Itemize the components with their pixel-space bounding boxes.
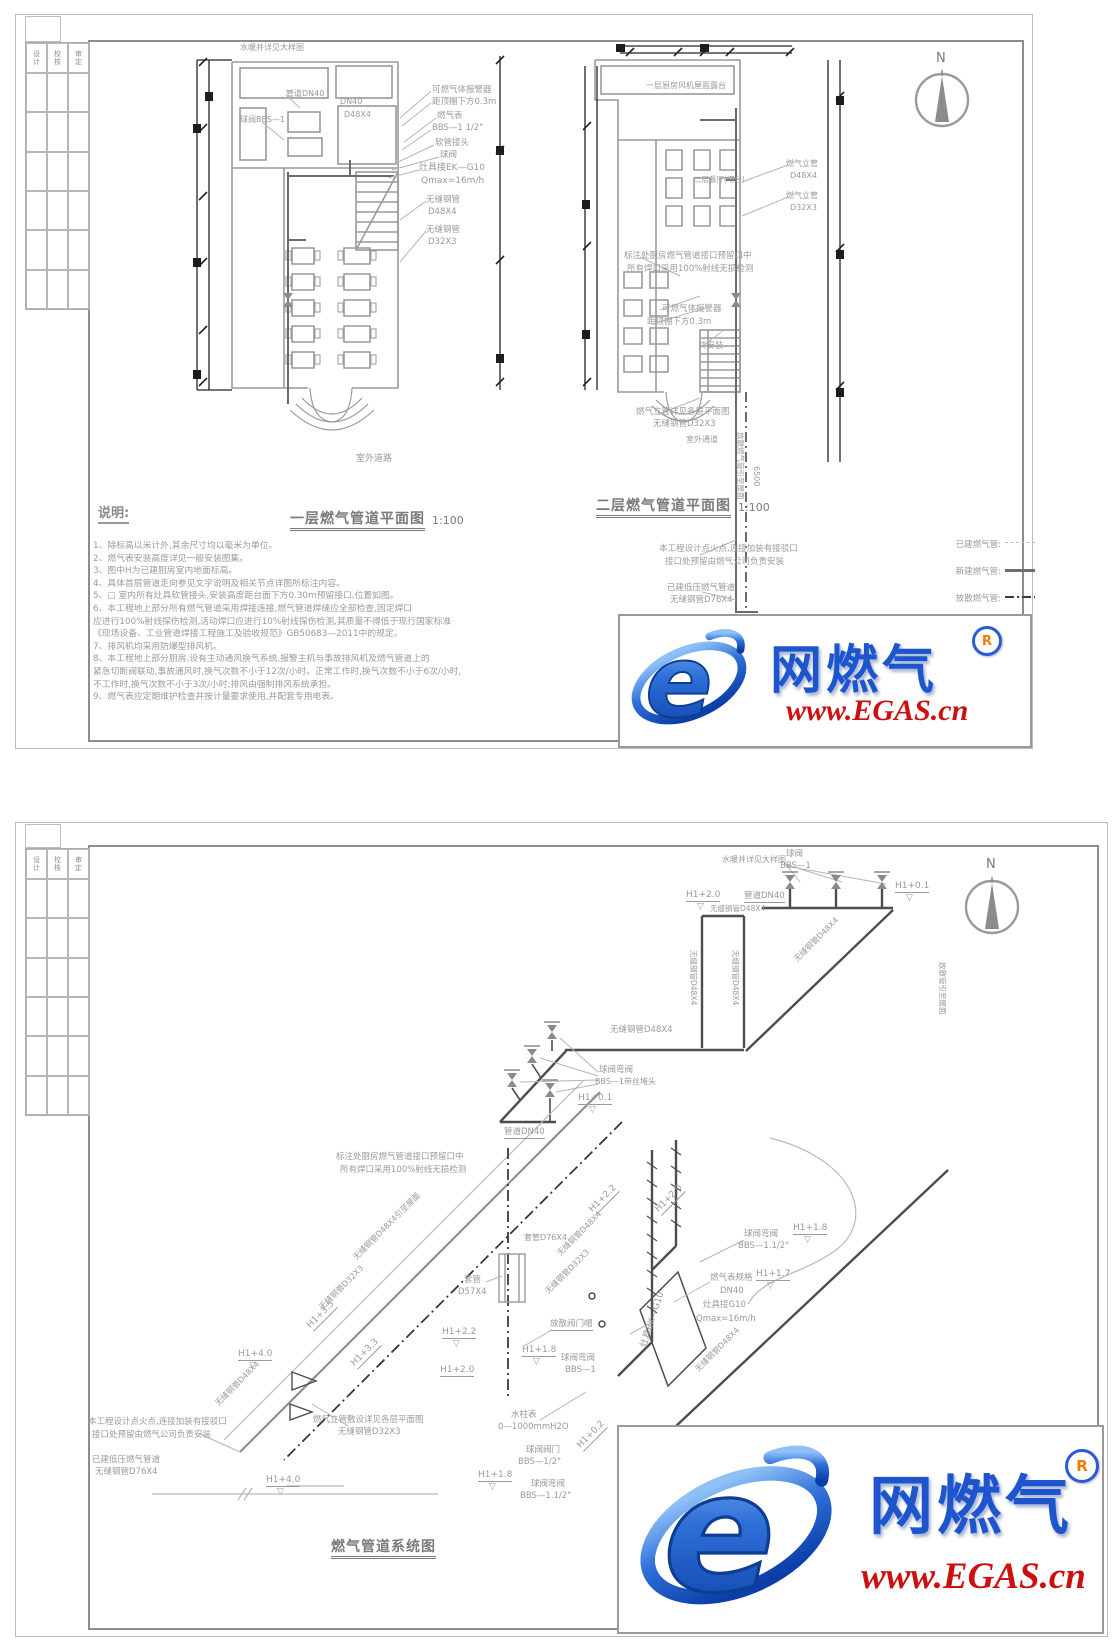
drawing-label: H1+4.0 — [266, 1476, 300, 1487]
annotation-layer: 水暖井详见大样图管道DN40DN40D48X4球阀BBS—1可燃气体报警器距顶棚… — [0, 0, 1118, 1651]
drawing-label: H1+1.7 — [756, 1270, 790, 1281]
drawing-label: DN40 — [340, 98, 362, 106]
drawing-page: 设计校核审定 设计校核审定 — [0, 0, 1118, 1651]
drawing-label: H1+2.2 — [588, 1184, 620, 1216]
system-diagram-title: 燃气管道系统图 — [331, 1540, 436, 1559]
drawing-label: ▽ — [589, 1106, 596, 1115]
north-label: N — [986, 858, 996, 871]
drawing-label: 球阀 — [440, 151, 457, 160]
drawing-label: ▽ — [697, 903, 704, 912]
drawing-label: BBS—1.1/2" — [520, 1492, 571, 1501]
drawing-label: 无缝钢管D48X4 — [710, 905, 765, 913]
svg-text:e: e — [663, 1437, 775, 1629]
drawing-label: BBS—1 1/2" — [432, 124, 483, 133]
drawing-label: ▽ — [767, 1282, 774, 1291]
drawing-label: 室外通道 — [686, 436, 718, 444]
drawing-label: 燃气立管 — [786, 192, 818, 200]
drawing-label: H1+2.2 — [442, 1328, 476, 1339]
watermark-brand: 网燃气 — [869, 1455, 1073, 1547]
drawing-label: 接口处预留由燃气公司负责安装 — [92, 1431, 211, 1440]
drawing-label: 燃气立管敷设详见各层平面图 — [313, 1416, 424, 1425]
svg-text:e: e — [645, 625, 712, 740]
drawing-label: 软管接头 — [435, 139, 469, 148]
drawing-label: 本工程设计点火点,连接加装有接驳口 — [659, 545, 798, 554]
drawing-label: 无缝钢管D76X4 — [670, 596, 733, 605]
drawing-label: 无缝钢管D48X4 — [610, 1026, 673, 1035]
watermark-url: www.EGAS.cn — [786, 694, 968, 728]
drawing-label: 无缝钢管D48X4 — [214, 1360, 261, 1407]
drawing-label: BBS—1 — [565, 1366, 596, 1375]
drawing-label: 放散管引至屋面 — [939, 962, 947, 1015]
drawing-label: 接口处预留由燃气公司负责安装 — [665, 558, 784, 567]
drawing-label: H1+1.8 — [793, 1224, 827, 1235]
drawing-label: Qmax=16m/h — [696, 1315, 756, 1324]
drawing-label: 无缝钢管D32X3 — [544, 1248, 591, 1295]
drawing-label: 套管 — [464, 1276, 481, 1285]
drawing-label: 水暖井详见大样图 — [240, 44, 304, 52]
drawing-label: ▽ — [804, 1236, 811, 1245]
drawing-label: BBS—1 — [780, 862, 811, 871]
drawing-label: ▽ — [277, 1488, 284, 1497]
drawing-label: 放散燃气管引至屋面 — [737, 432, 745, 500]
watermark-brand: 网燃气 — [770, 628, 938, 703]
drawing-label: 放散阀门帽 — [550, 1320, 593, 1331]
drawing-label: BBS—1.1/2" — [738, 1242, 789, 1251]
drawing-label: 水柱表 — [511, 1411, 537, 1420]
drawing-label: 无缝钢管D48X4 — [793, 916, 840, 963]
drawing-label: 无缝钢管D32X3 — [653, 420, 716, 429]
drawing-label: 燃气立管 — [786, 160, 818, 168]
drawing-label: 球阀弯阀 — [561, 1354, 595, 1363]
drawing-label: D32X3 — [790, 204, 817, 212]
drawing-label: ▽ — [906, 894, 913, 903]
drawing-label: H1+1.8 — [522, 1346, 556, 1357]
north-label: N — [936, 52, 946, 65]
drawing-label: 标注处厨房燃气管道接口预留口中 — [336, 1153, 464, 1162]
drawing-label: H1+0.1 — [895, 882, 929, 893]
drawing-label: H1+3.3 — [350, 1338, 382, 1370]
drawing-label: 球阀 — [786, 850, 803, 859]
drawing-label: H1+1.8 — [478, 1471, 512, 1482]
drawing-label: 距顶棚下方0.3m — [647, 318, 711, 327]
drawing-label: H1+0.2 — [576, 1420, 608, 1452]
drawing-label: 共安装 — [698, 342, 724, 351]
plan2-scale: 1:100 — [738, 502, 770, 513]
drawing-label: 6500 — [752, 466, 760, 486]
drawing-label: 球阀阀门 — [526, 1446, 560, 1455]
drawing-label: ▽ — [533, 1358, 540, 1367]
drawing-label: 标注处厨房燃气管道接口预留口中 — [624, 252, 752, 261]
drawing-label: 无缝钢管D32X3 — [338, 1428, 401, 1437]
drawing-label: 已建低压燃气管道 — [667, 584, 735, 593]
drawing-label: 燃气表 — [437, 112, 463, 121]
plan2-title: 二层燃气管道平面图 — [596, 499, 731, 518]
drawing-label: 无缝钢管D48X4 — [690, 950, 698, 1005]
drawing-label: DN40 — [720, 1287, 744, 1296]
drawing-label: H1+2.0 — [440, 1366, 474, 1377]
drawing-label: 0—1000mmH2O — [498, 1423, 569, 1432]
drawing-label: ▽ — [489, 1483, 496, 1492]
drawing-label: Qmax=16m/h — [421, 177, 484, 186]
drawing-label: D48X4 — [344, 111, 371, 119]
drawing-label: 无缝钢管D48X4引至屋面 — [352, 1192, 422, 1262]
drawing-label: 无缝钢管D48X4 — [694, 1326, 741, 1373]
egas-watermark: e 网燃气 R www.EGAS.cn — [617, 1425, 1104, 1634]
drawing-label: 无缝钢管 — [426, 226, 460, 235]
ie-e-logo-icon: e — [631, 1435, 841, 1629]
drawing-label: 所有焊口采用100%射线无损检测 — [340, 1166, 466, 1175]
drawing-label: 球阀弯阀 — [599, 1066, 633, 1075]
drawing-label: 灶具BX—G10 — [640, 1291, 666, 1349]
drawing-label: 水暖井详见大样图 — [722, 856, 786, 864]
drawing-label: H1+2.0 — [654, 1184, 686, 1216]
drawing-label: 可燃气体报警器 — [432, 86, 492, 95]
drawing-label: 二层餐厅(吧台) — [694, 176, 745, 184]
drawing-label: 一层厨房风机屋面露台 — [646, 82, 726, 90]
drawing-label: H1+2.0 — [686, 891, 720, 902]
drawing-label: 燃气立管详见各层平面图 — [636, 408, 730, 417]
drawing-label: 球阀弯阀 — [744, 1230, 778, 1239]
drawing-label: 套管D76X4 — [524, 1234, 567, 1242]
drawing-label: 本工程设计点火点,连接加装有接驳口 — [88, 1418, 227, 1427]
drawing-label: 室外道路 — [356, 455, 392, 464]
drawing-label: 所有焊口采用100%射线无损检测 — [627, 265, 753, 274]
drawing-label: 管道DN40 — [504, 1128, 545, 1139]
drawing-label: 距顶棚下方0.3m — [432, 98, 496, 107]
drawing-label: 燃气表规格 — [710, 1274, 753, 1283]
registered-mark-icon: R — [972, 626, 1002, 656]
drawing-label: D48X4 — [428, 208, 457, 217]
drawing-label: D32X3 — [428, 238, 457, 247]
drawing-label: 管道DN40 — [286, 90, 324, 98]
plan1-scale: 1:100 — [432, 515, 464, 526]
drawing-label: BBS—1带丝堵头 — [595, 1078, 656, 1086]
drawing-label: D57X4 — [458, 1288, 487, 1297]
drawing-label: 球阀BBS—1 — [240, 116, 285, 124]
drawing-label: ▽ — [453, 1340, 460, 1349]
ie-e-logo-icon: e — [626, 620, 752, 742]
plan1-title: 一层燃气管道平面图 — [290, 512, 425, 531]
drawing-label: 无缝钢管D48X4 — [732, 950, 740, 1005]
drawing-label: 已建低压燃气管道 — [92, 1456, 160, 1465]
drawing-label: 可燃气体报警器 — [662, 305, 722, 314]
drawing-label: 灶具接G10 — [703, 1301, 746, 1310]
drawing-label: BBS—1/2" — [518, 1458, 561, 1467]
watermark-url: www.EGAS.cn — [861, 1555, 1086, 1598]
drawing-label: H1+0.1 — [578, 1094, 612, 1105]
drawing-label: 灶具接EK—G10 — [419, 164, 485, 173]
drawing-label: 球阀弯阀 — [531, 1480, 565, 1489]
registered-mark-icon: R — [1065, 1449, 1099, 1483]
drawing-label: 无缝钢管 — [426, 196, 460, 205]
egas-watermark: e 网燃气 R www.EGAS.cn — [618, 614, 1032, 748]
drawing-label: 无缝钢管D76X4 — [95, 1468, 158, 1477]
drawing-label: 管道DN40 — [744, 892, 785, 903]
drawing-label: D48X4 — [790, 172, 817, 180]
